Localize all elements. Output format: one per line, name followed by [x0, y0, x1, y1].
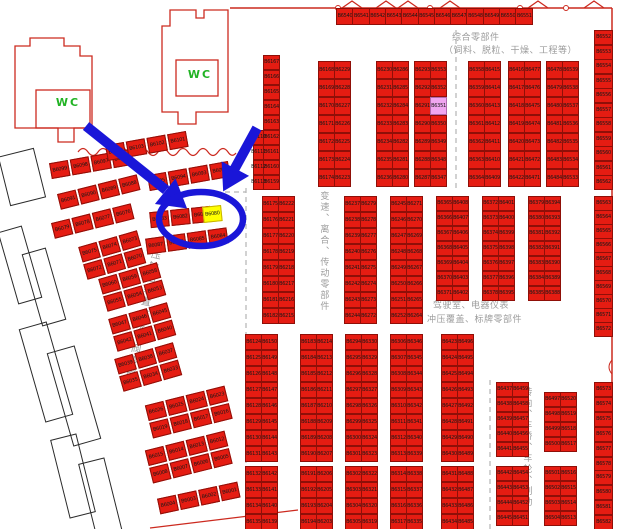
storage-cell[interactable]: B6314: [390, 466, 407, 482]
storage-cell[interactable]: B6147: [261, 382, 278, 398]
storage-cell[interactable]: B6273: [360, 292, 377, 308]
storage-cell[interactable]: B6149: [261, 350, 278, 366]
storage-cell[interactable]: B6317: [390, 514, 407, 529]
storage-cell[interactable]: B6111: [253, 145, 264, 160]
storage-cell[interactable]: B6277: [360, 228, 377, 244]
storage-cell[interactable]: B6004: [157, 495, 179, 515]
storage-cell[interactable]: B6458: [512, 397, 529, 412]
storage-cell[interactable]: B6341: [406, 414, 423, 430]
storage-cell[interactable]: B6008: [149, 463, 171, 483]
storage-cell[interactable]: B6565: [594, 224, 613, 239]
storage-cell[interactable]: B6224: [334, 151, 351, 169]
storage-cell[interactable]: B6035: [119, 371, 142, 392]
storage-cell[interactable]: B6293: [414, 61, 431, 79]
storage-cell[interactable]: B6474: [524, 115, 541, 133]
storage-cell[interactable]: B6564: [594, 210, 613, 225]
storage-cell[interactable]: B6514: [560, 496, 577, 511]
storage-cell[interactable]: B6267: [406, 260, 423, 276]
storage-cell[interactable]: B6268: [406, 244, 423, 260]
storage-cell[interactable]: B6185: [300, 366, 317, 382]
storage-cell[interactable]: B6219: [278, 244, 295, 260]
storage-cell[interactable]: B6367: [436, 226, 453, 241]
storage-cell[interactable]: B6560: [594, 146, 613, 161]
storage-cell[interactable]: B6294: [345, 334, 362, 350]
storage-cell[interactable]: B6405: [452, 241, 469, 256]
storage-cell[interactable]: B6276: [360, 244, 377, 260]
storage-cell[interactable]: B6455: [512, 442, 529, 457]
storage-cell[interactable]: B6271: [406, 196, 423, 212]
storage-cell[interactable]: B6437: [496, 382, 513, 397]
storage-cell[interactable]: B6209: [316, 414, 333, 430]
storage-cell[interactable]: B6368: [436, 241, 453, 256]
storage-cell[interactable]: B6313: [390, 446, 407, 462]
storage-cell[interactable]: B6516: [560, 466, 577, 481]
storage-cell[interactable]: B6170: [318, 97, 335, 115]
storage-cell[interactable]: B6486: [457, 498, 474, 514]
storage-cell[interactable]: B6183: [300, 334, 317, 350]
storage-cell[interactable]: B6365: [436, 196, 453, 211]
storage-cell[interactable]: B6322: [361, 466, 378, 482]
storage-cell[interactable]: B6098: [70, 156, 91, 175]
storage-cell[interactable]: B6433: [441, 498, 458, 514]
storage-cell[interactable]: B6408: [452, 196, 469, 211]
storage-cell[interactable]: B6393: [544, 211, 561, 226]
storage-cell[interactable]: B6287: [414, 169, 431, 187]
storage-cell[interactable]: B6139: [261, 514, 278, 529]
storage-cell[interactable]: B6409: [484, 169, 501, 187]
storage-cell[interactable]: B6001: [219, 482, 241, 502]
storage-cell[interactable]: B6230: [376, 61, 393, 79]
storage-cell[interactable]: B6582: [594, 515, 613, 529]
storage-cell[interactable]: B6555: [594, 74, 613, 89]
storage-cell[interactable]: B6547: [450, 8, 468, 25]
storage-cell[interactable]: B6353: [430, 61, 447, 79]
storage-cell[interactable]: B6401: [498, 196, 515, 211]
storage-cell[interactable]: B6211: [316, 382, 333, 398]
storage-cell[interactable]: B6404: [452, 256, 469, 271]
storage-cell[interactable]: B6042: [113, 331, 136, 352]
storage-cell[interactable]: B6402: [452, 286, 469, 301]
storage-cell[interactable]: B6571: [594, 308, 613, 323]
storage-cell[interactable]: B6335: [406, 514, 423, 529]
storage-cell[interactable]: B6330: [361, 334, 378, 350]
storage-cell[interactable]: B6034: [139, 365, 162, 386]
storage-cell[interactable]: B6041: [133, 325, 156, 346]
storage-cell[interactable]: B6173: [318, 151, 335, 169]
storage-cell[interactable]: B6127: [245, 382, 262, 398]
storage-cell[interactable]: B6558: [594, 117, 613, 132]
storage-cell[interactable]: B6538: [562, 79, 579, 97]
storage-cell[interactable]: B6279: [360, 196, 377, 212]
storage-cell[interactable]: B6540: [336, 8, 354, 25]
storage-cell[interactable]: B6484: [546, 169, 563, 187]
storage-cell[interactable]: B6182: [262, 308, 279, 324]
storage-cell[interactable]: B6536: [562, 115, 579, 133]
storage-cell[interactable]: B6177: [262, 228, 279, 244]
storage-cell[interactable]: B6278: [360, 212, 377, 228]
storage-cell[interactable]: B6307: [390, 350, 407, 366]
storage-cell[interactable]: B6218: [278, 260, 295, 276]
storage-cell[interactable]: B6184: [300, 350, 317, 366]
storage-cell[interactable]: B6212: [316, 366, 333, 382]
storage-cell[interactable]: B6399: [498, 226, 515, 241]
storage-cell[interactable]: B6145: [261, 414, 278, 430]
storage-cell[interactable]: B6406: [452, 226, 469, 241]
storage-cell[interactable]: B6084: [208, 227, 229, 245]
storage-cell[interactable]: B6539: [562, 61, 579, 79]
storage-cell[interactable]: B6498: [544, 407, 561, 422]
storage-cell[interactable]: B6093: [188, 165, 209, 184]
storage-cell[interactable]: B6385: [528, 286, 545, 301]
storage-cell[interactable]: B6304: [345, 498, 362, 514]
storage-cell[interactable]: B6576: [594, 427, 613, 442]
storage-cell[interactable]: B6236: [376, 169, 393, 187]
storage-cell[interactable]: B6092: [209, 161, 230, 180]
storage-cell[interactable]: B6570: [594, 294, 613, 309]
storage-cell[interactable]: B6087: [145, 236, 166, 254]
storage-cell[interactable]: B6428: [441, 414, 458, 430]
storage-cell[interactable]: B6552: [594, 30, 613, 45]
storage-cell[interactable]: B6002: [198, 486, 220, 506]
storage-cell[interactable]: B6094: [168, 168, 189, 187]
storage-cell[interactable]: B6496: [457, 334, 474, 350]
storage-cell[interactable]: B6246: [390, 212, 407, 228]
storage-cell[interactable]: B6573: [594, 382, 613, 397]
storage-cell[interactable]: B6251: [390, 292, 407, 308]
storage-cell[interactable]: B6457: [512, 412, 529, 427]
storage-cell[interactable]: B6424: [441, 350, 458, 366]
storage-cell[interactable]: B6282: [392, 133, 409, 151]
storage-cell[interactable]: B6243: [344, 292, 361, 308]
storage-cell[interactable]: B6296: [345, 366, 362, 382]
storage-cell[interactable]: B6569: [594, 280, 613, 295]
storage-cell[interactable]: B6329: [361, 350, 378, 366]
storage-cell[interactable]: B6215: [278, 308, 295, 324]
storage-cell[interactable]: B6391: [544, 241, 561, 256]
storage-cell[interactable]: B6023: [206, 386, 228, 406]
storage-cell[interactable]: B6362: [468, 133, 485, 151]
storage-cell[interactable]: B6078: [71, 214, 93, 234]
storage-cell[interactable]: B6143: [261, 446, 278, 462]
storage-cell[interactable]: B6014: [165, 441, 187, 461]
storage-cell[interactable]: B6125: [245, 350, 262, 366]
storage-cell[interactable]: B6352: [430, 79, 447, 97]
storage-cell[interactable]: B6144: [261, 430, 278, 446]
storage-cell[interactable]: B6242: [344, 276, 361, 292]
storage-cell[interactable]: B6518: [560, 422, 577, 437]
storage-cell[interactable]: B6128: [245, 398, 262, 414]
storage-cell[interactable]: B6203: [316, 514, 333, 529]
storage-cell[interactable]: B6423: [441, 334, 458, 350]
storage-cell[interactable]: B6311: [390, 414, 407, 430]
storage-cell[interactable]: B6342: [406, 398, 423, 414]
storage-cell[interactable]: B6456: [512, 427, 529, 442]
storage-cell[interactable]: B6274: [360, 276, 377, 292]
storage-cell[interactable]: B6025: [165, 396, 187, 416]
storage-cell[interactable]: B6347: [430, 169, 447, 187]
storage-cell[interactable]: B6575: [594, 412, 613, 427]
storage-cell[interactable]: B6459: [512, 382, 529, 397]
storage-cell[interactable]: B6580: [594, 485, 613, 500]
storage-cell[interactable]: B6364: [468, 169, 485, 187]
storage-cell[interactable]: B6235: [376, 151, 393, 169]
storage-cell[interactable]: B6410: [484, 151, 501, 169]
storage-cell[interactable]: B6205: [316, 482, 333, 498]
storage-cell[interactable]: B6217: [278, 276, 295, 292]
storage-cell[interactable]: B6422: [508, 169, 525, 187]
storage-cell[interactable]: B6326: [361, 398, 378, 414]
storage-cell[interactable]: B6430: [441, 446, 458, 462]
storage-cell[interactable]: B6007: [170, 458, 192, 478]
storage-cell[interactable]: B6444: [496, 496, 513, 511]
storage-cell[interactable]: B6559: [594, 132, 613, 147]
storage-cell[interactable]: B6477: [524, 61, 541, 79]
storage-cell[interactable]: B6102: [146, 135, 167, 154]
storage-cell[interactable]: B6321: [361, 482, 378, 498]
storage-cell[interactable]: B6264: [406, 308, 423, 324]
storage-cell[interactable]: B6360: [468, 97, 485, 115]
storage-cell[interactable]: B6479: [546, 79, 563, 97]
storage-cell[interactable]: B6541: [352, 8, 370, 25]
storage-cell[interactable]: B6229: [334, 61, 351, 79]
storage-cell[interactable]: B6427: [441, 398, 458, 414]
storage-cell[interactable]: B6567: [594, 252, 613, 267]
storage-cell[interactable]: B6110: [253, 130, 264, 145]
storage-cell[interactable]: B6577: [594, 442, 613, 457]
storage-cell[interactable]: B6349: [430, 133, 447, 151]
storage-cell[interactable]: B6544: [401, 8, 419, 25]
storage-cell[interactable]: B6344: [406, 366, 423, 382]
storage-cell[interactable]: B6233: [376, 115, 393, 133]
storage-cell[interactable]: B6563: [594, 196, 613, 211]
storage-cell[interactable]: B6397: [498, 256, 515, 271]
storage-cell[interactable]: B6289: [414, 133, 431, 151]
storage-cell[interactable]: B6082: [170, 208, 191, 226]
storage-cell[interactable]: B6301: [345, 446, 362, 462]
storage-cell[interactable]: B6113: [253, 175, 264, 190]
storage-cell[interactable]: B6225: [334, 133, 351, 151]
storage-cell[interactable]: B6016: [210, 403, 232, 423]
storage-cell[interactable]: B6220: [278, 228, 295, 244]
storage-cell[interactable]: B6400: [498, 211, 515, 226]
storage-cell[interactable]: B6323: [361, 446, 378, 462]
storage-cell[interactable]: B6266: [406, 276, 423, 292]
storage-cell[interactable]: B6451: [512, 511, 529, 526]
storage-cell[interactable]: B6503: [544, 496, 561, 511]
storage-cell[interactable]: B6350: [430, 115, 447, 133]
storage-cell[interactable]: B6383: [528, 256, 545, 271]
storage-cell[interactable]: B6221: [278, 212, 295, 228]
storage-cell[interactable]: B6579: [594, 470, 613, 485]
storage-cell[interactable]: B6478: [546, 61, 563, 79]
storage-cell[interactable]: B6013: [186, 436, 208, 456]
storage-cell[interactable]: B6340: [406, 430, 423, 446]
storage-cell[interactable]: B6095: [147, 172, 168, 191]
storage-cell[interactable]: B6024: [186, 391, 208, 411]
storage-cell[interactable]: B6103: [126, 138, 147, 157]
storage-cell-selected[interactable]: B6080: [202, 205, 223, 223]
storage-cell[interactable]: B6372: [482, 196, 499, 211]
storage-cell[interactable]: B6228: [334, 79, 351, 97]
storage-cell[interactable]: B6392: [544, 226, 561, 241]
storage-cell[interactable]: B6164: [263, 100, 280, 115]
storage-cell[interactable]: B6497: [544, 392, 561, 407]
storage-cell[interactable]: B6275: [360, 260, 377, 276]
storage-cell[interactable]: B6421: [508, 151, 525, 169]
storage-cell[interactable]: B6533: [562, 169, 579, 187]
storage-cell[interactable]: B6312: [390, 430, 407, 446]
storage-cell[interactable]: B6371: [436, 286, 453, 301]
storage-cell[interactable]: B6476: [524, 79, 541, 97]
storage-cell[interactable]: B6420: [508, 133, 525, 151]
storage-cell[interactable]: B6581: [594, 500, 613, 515]
storage-cell[interactable]: B6471: [524, 169, 541, 187]
storage-cell[interactable]: B6327: [361, 382, 378, 398]
storage-cell[interactable]: B6415: [484, 61, 501, 79]
storage-cell[interactable]: B6361: [468, 115, 485, 133]
storage-cell[interactable]: B6280: [392, 169, 409, 187]
storage-cell[interactable]: B6017: [190, 408, 212, 428]
storage-cell[interactable]: B6336: [406, 498, 423, 514]
storage-cell[interactable]: B6388: [544, 286, 561, 301]
storage-cell[interactable]: B6348: [430, 151, 447, 169]
storage-cell[interactable]: B6411: [484, 133, 501, 151]
storage-cell[interactable]: B6491: [457, 414, 474, 430]
storage-cell[interactable]: B6412: [484, 115, 501, 133]
storage-cell[interactable]: B6431: [441, 466, 458, 482]
storage-cell[interactable]: B6015: [145, 446, 167, 466]
storage-cell[interactable]: B6382: [528, 241, 545, 256]
storage-cell[interactable]: B6432: [441, 482, 458, 498]
storage-cell[interactable]: B6452: [512, 496, 529, 511]
storage-cell[interactable]: B6171: [318, 115, 335, 133]
storage-cell[interactable]: B6165: [263, 85, 280, 100]
storage-cell[interactable]: B6133: [245, 482, 262, 498]
storage-cell[interactable]: B6429: [441, 430, 458, 446]
storage-cell[interactable]: B6281: [392, 151, 409, 169]
storage-cell[interactable]: B6240: [344, 244, 361, 260]
storage-cell[interactable]: B6300: [345, 430, 362, 446]
storage-cell[interactable]: B6443: [496, 481, 513, 496]
storage-cell[interactable]: B6168: [318, 61, 335, 79]
storage-cell[interactable]: B6537: [562, 97, 579, 115]
storage-cell[interactable]: B6239: [344, 228, 361, 244]
storage-cell[interactable]: B6207: [316, 446, 333, 462]
storage-cell[interactable]: B6131: [245, 446, 262, 462]
storage-cell[interactable]: B6550: [499, 8, 517, 25]
storage-cell[interactable]: B6285: [392, 79, 409, 97]
storage-cell[interactable]: B6325: [361, 414, 378, 430]
storage-cell[interactable]: B6250: [390, 276, 407, 292]
storage-cell[interactable]: B6482: [546, 133, 563, 151]
storage-cell[interactable]: B6345: [406, 350, 423, 366]
storage-cell[interactable]: B6210: [316, 398, 333, 414]
storage-cell[interactable]: B6343: [406, 382, 423, 398]
storage-cell[interactable]: B6502: [544, 481, 561, 496]
storage-cell[interactable]: B6269: [406, 228, 423, 244]
storage-cell[interactable]: B6019: [149, 418, 171, 438]
storage-cell[interactable]: B6088: [118, 174, 140, 194]
storage-cell[interactable]: B6568: [594, 266, 613, 281]
storage-cell[interactable]: B6418: [508, 97, 525, 115]
storage-cell[interactable]: B6055: [103, 291, 126, 312]
storage-cell[interactable]: B6249: [390, 260, 407, 276]
storage-cell[interactable]: B6499: [544, 422, 561, 437]
storage-cell[interactable]: B6366: [436, 211, 453, 226]
storage-cell[interactable]: B6416: [508, 61, 525, 79]
storage-cell[interactable]: B6297: [345, 382, 362, 398]
storage-cell[interactable]: B6090: [77, 185, 99, 205]
storage-cell[interactable]: B6227: [334, 97, 351, 115]
storage-cell[interactable]: B6403: [452, 271, 469, 286]
storage-cell-highlighted[interactable]: B6351: [430, 97, 447, 115]
storage-cell[interactable]: B6442: [496, 466, 513, 481]
storage-cell[interactable]: B6473: [524, 133, 541, 151]
storage-cell[interactable]: B6561: [594, 161, 613, 176]
storage-cell[interactable]: B6180: [262, 276, 279, 292]
storage-cell[interactable]: B6135: [245, 514, 262, 529]
storage-cell[interactable]: B6299: [345, 414, 362, 430]
storage-cell[interactable]: B6485: [457, 514, 474, 529]
storage-cell[interactable]: B6501: [544, 466, 561, 481]
storage-cell[interactable]: B6305: [345, 514, 362, 529]
storage-cell[interactable]: B6472: [524, 151, 541, 169]
storage-cell[interactable]: B6101: [167, 131, 188, 150]
storage-cell[interactable]: B6390: [544, 256, 561, 271]
storage-cell[interactable]: B6339: [406, 446, 423, 462]
storage-cell[interactable]: B6272: [360, 308, 377, 324]
storage-cell[interactable]: B6089: [98, 179, 120, 199]
storage-cell[interactable]: B6488: [457, 466, 474, 482]
storage-cell[interactable]: B6320: [361, 498, 378, 514]
storage-cell[interactable]: B6216: [278, 292, 295, 308]
storage-cell[interactable]: B6303: [345, 482, 362, 498]
storage-cell[interactable]: B6309: [390, 382, 407, 398]
storage-cell[interactable]: B6178: [262, 244, 279, 260]
storage-cell[interactable]: B6572: [594, 322, 613, 337]
storage-cell[interactable]: B6438: [496, 397, 513, 412]
storage-cell[interactable]: B6376: [482, 256, 499, 271]
storage-cell[interactable]: B6389: [544, 271, 561, 286]
storage-cell[interactable]: B6513: [560, 511, 577, 526]
storage-cell[interactable]: B6546: [434, 8, 452, 25]
storage-cell[interactable]: B6186: [300, 382, 317, 398]
storage-cell[interactable]: B6324: [361, 430, 378, 446]
storage-cell[interactable]: B6490: [457, 430, 474, 446]
storage-cell[interactable]: B6085: [187, 230, 208, 248]
storage-cell[interactable]: B6337: [406, 482, 423, 498]
storage-cell[interactable]: B6475: [524, 97, 541, 115]
storage-cell[interactable]: B6005: [210, 448, 232, 468]
storage-cell[interactable]: B6517: [560, 437, 577, 452]
storage-cell[interactable]: B6319: [361, 514, 378, 529]
storage-cell[interactable]: B6548: [466, 8, 484, 25]
storage-cell[interactable]: B6232: [376, 97, 393, 115]
storage-cell[interactable]: B6126: [245, 366, 262, 382]
storage-cell[interactable]: B6140: [261, 498, 278, 514]
storage-cell[interactable]: B6208: [316, 430, 333, 446]
storage-cell[interactable]: B6434: [441, 514, 458, 529]
storage-cell[interactable]: B6553: [594, 45, 613, 60]
storage-cell[interactable]: B6226: [334, 115, 351, 133]
storage-cell[interactable]: B6381: [528, 226, 545, 241]
storage-cell[interactable]: B6295: [345, 350, 362, 366]
storage-cell[interactable]: B6112: [253, 160, 264, 175]
storage-cell[interactable]: B6441: [496, 442, 513, 457]
storage-cell[interactable]: B6214: [316, 334, 333, 350]
storage-cell[interactable]: B6414: [484, 79, 501, 97]
storage-cell[interactable]: B6040: [154, 320, 177, 341]
